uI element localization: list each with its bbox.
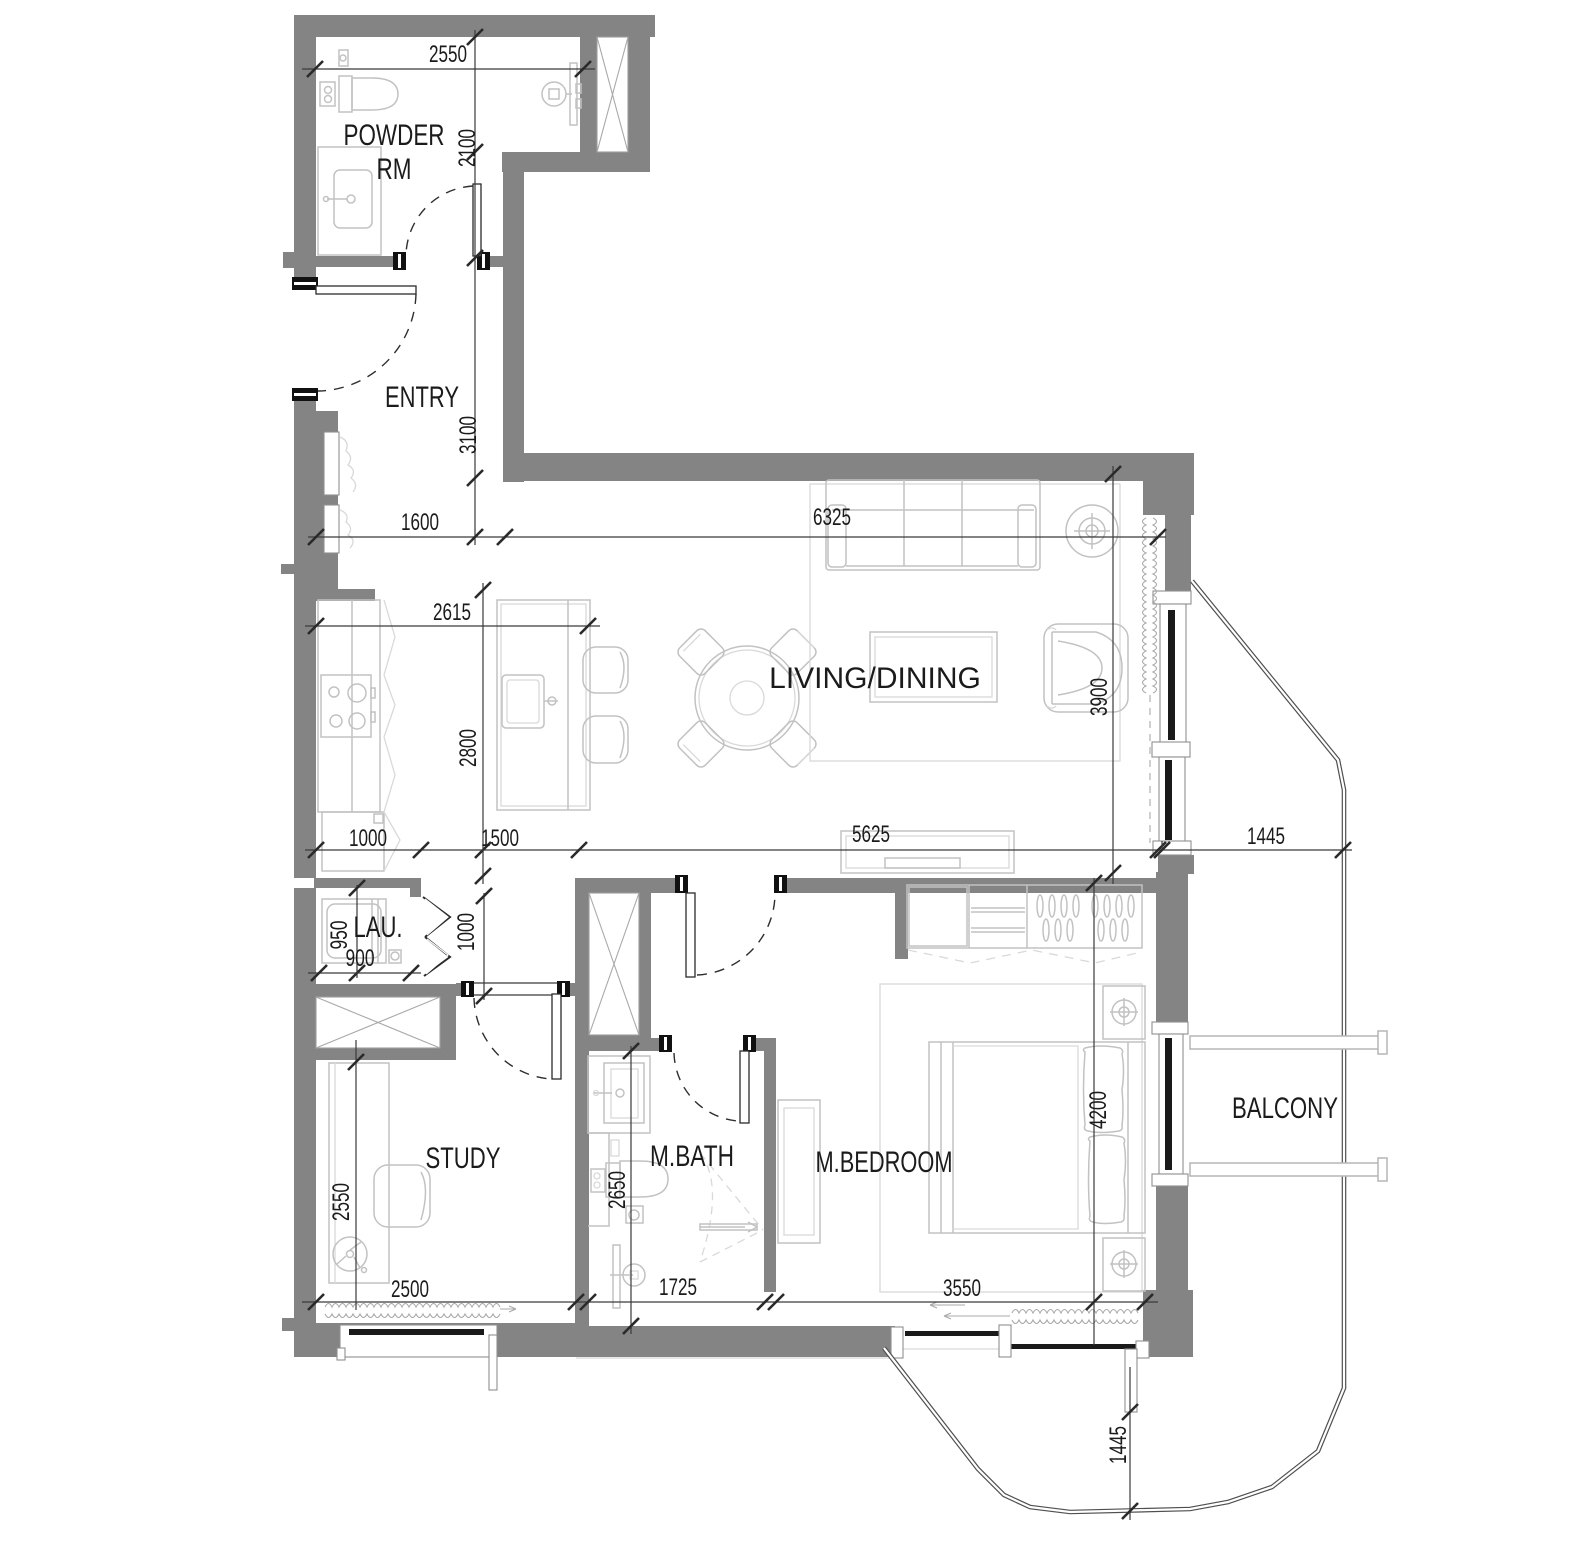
svg-text:RM: RM — [377, 153, 412, 186]
svg-text:3900: 3900 — [1086, 678, 1113, 716]
svg-text:3100: 3100 — [455, 416, 482, 454]
svg-text:LIVING/DINING: LIVING/DINING — [769, 662, 981, 695]
svg-text:1000: 1000 — [349, 825, 387, 852]
svg-text:6325: 6325 — [813, 504, 851, 531]
svg-text:POWDER: POWDER — [344, 119, 445, 152]
svg-text:2800: 2800 — [455, 729, 482, 767]
svg-text:2550: 2550 — [328, 1183, 355, 1221]
svg-text:1000: 1000 — [453, 913, 480, 951]
svg-text:1725: 1725 — [659, 1274, 697, 1301]
svg-text:900: 900 — [346, 945, 375, 972]
svg-text:2550: 2550 — [429, 41, 467, 68]
svg-text:1445: 1445 — [1247, 823, 1285, 850]
svg-text:ENTRY: ENTRY — [385, 381, 459, 414]
svg-text:LAU.: LAU. — [354, 911, 403, 944]
svg-text:STUDY: STUDY — [426, 1142, 501, 1175]
svg-text:M.BATH: M.BATH — [650, 1140, 734, 1173]
svg-text:1600: 1600 — [401, 509, 439, 536]
svg-text:2615: 2615 — [433, 599, 471, 626]
svg-text:BALCONY: BALCONY — [1232, 1092, 1338, 1125]
svg-text:1445: 1445 — [1105, 1426, 1132, 1464]
svg-text:1500: 1500 — [481, 825, 519, 852]
svg-text:5625: 5625 — [852, 821, 890, 848]
svg-text:2100: 2100 — [454, 129, 481, 167]
svg-text:2650: 2650 — [604, 1171, 631, 1209]
svg-text:2500: 2500 — [391, 1276, 429, 1303]
svg-text:4200: 4200 — [1085, 1091, 1112, 1129]
svg-text:M.BEDROOM: M.BEDROOM — [816, 1146, 953, 1179]
svg-text:3550: 3550 — [943, 1275, 981, 1302]
